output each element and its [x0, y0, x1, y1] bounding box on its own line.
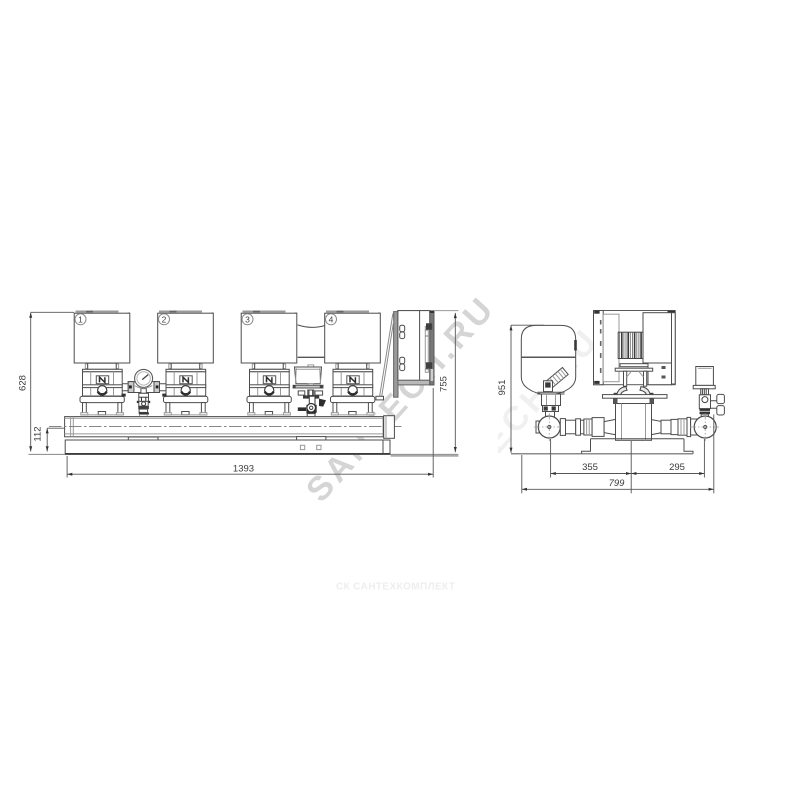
svg-text:1393: 1393	[233, 463, 254, 474]
svg-text:112: 112	[33, 426, 44, 441]
svg-text:799: 799	[609, 478, 626, 489]
svg-text:4: 4	[329, 314, 334, 324]
svg-text:1: 1	[78, 314, 83, 324]
svg-text:СК САНТЕХКОМПЛЕКТ: СК САНТЕХКОМПЛЕКТ	[336, 582, 455, 593]
svg-text:355: 355	[582, 462, 598, 473]
svg-text:628: 628	[18, 375, 29, 391]
svg-text:295: 295	[669, 462, 685, 473]
svg-text:755: 755	[439, 376, 450, 392]
svg-text:951: 951	[497, 380, 508, 396]
svg-text:3: 3	[245, 314, 250, 324]
svg-text:2: 2	[162, 314, 167, 324]
